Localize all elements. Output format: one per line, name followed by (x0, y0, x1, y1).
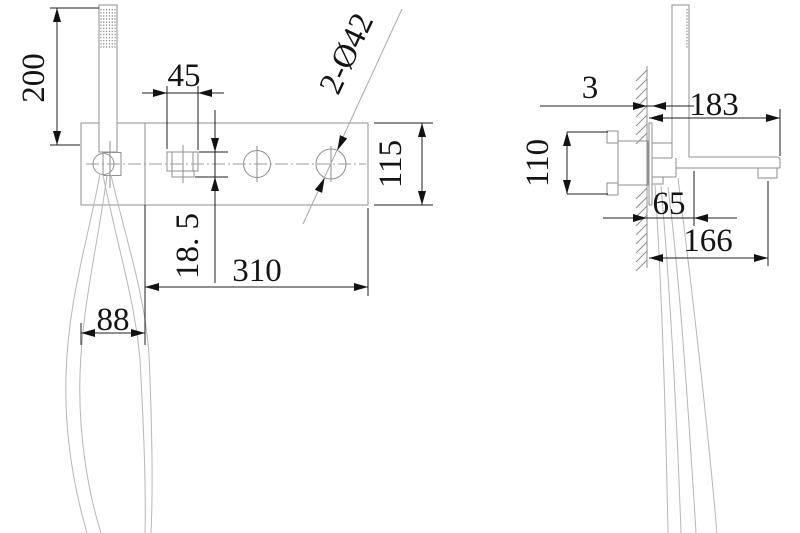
front-view: 200 45 18. 5 2-Ø42 (16, 5, 433, 533)
dimension-45: 45 (142, 58, 224, 150)
valve-tab-top (607, 131, 618, 143)
spray-face-texture (101, 9, 115, 49)
dim-label-166: 166 (683, 223, 733, 259)
in-wall-valve (607, 131, 648, 195)
dim-label-65: 65 (653, 186, 686, 222)
technical-drawing: 200 45 18. 5 2-Ø42 (0, 0, 800, 533)
dimension-65: 65 (603, 171, 737, 226)
hand-shower-side (672, 5, 689, 158)
hand-shower (93, 5, 121, 188)
dimension-18-5: 18. 5 (170, 110, 228, 283)
wall-section (636, 66, 647, 271)
hand-shower-body (99, 5, 117, 152)
dim-label-holes: 2-Ø42 (313, 8, 381, 100)
dimension-110: 110 (520, 132, 608, 194)
dimension-183: 183 (649, 87, 780, 156)
dim-label-310: 310 (232, 253, 282, 289)
dimension-200: 200 (16, 8, 99, 145)
spout-tip (778, 157, 780, 168)
dim-label-115: 115 (373, 140, 409, 188)
dim-label-183: 183 (689, 87, 739, 123)
valve-body (618, 141, 648, 185)
holes-callout: 2-Ø42 (303, 8, 402, 224)
dim-label-45: 45 (168, 58, 201, 94)
hose-outlet (652, 177, 663, 184)
shower-hose-front (66, 174, 152, 533)
aerator-side (758, 168, 777, 178)
side-view: 3 183 110 65 (520, 5, 780, 533)
dimension-115: 115 (373, 123, 433, 205)
dimension-3: 3 (540, 70, 694, 110)
dim-label-18-5: 18. 5 (170, 213, 206, 279)
dim-label-200: 200 (16, 53, 52, 103)
valve-tab-bottom (607, 183, 618, 195)
spout-side (652, 143, 780, 184)
dim-label-110: 110 (520, 139, 556, 187)
dim-label-88: 88 (97, 302, 130, 338)
hand-shower-bar (672, 5, 689, 158)
dim-label-3: 3 (582, 70, 599, 106)
wall-hatching (636, 70, 647, 271)
